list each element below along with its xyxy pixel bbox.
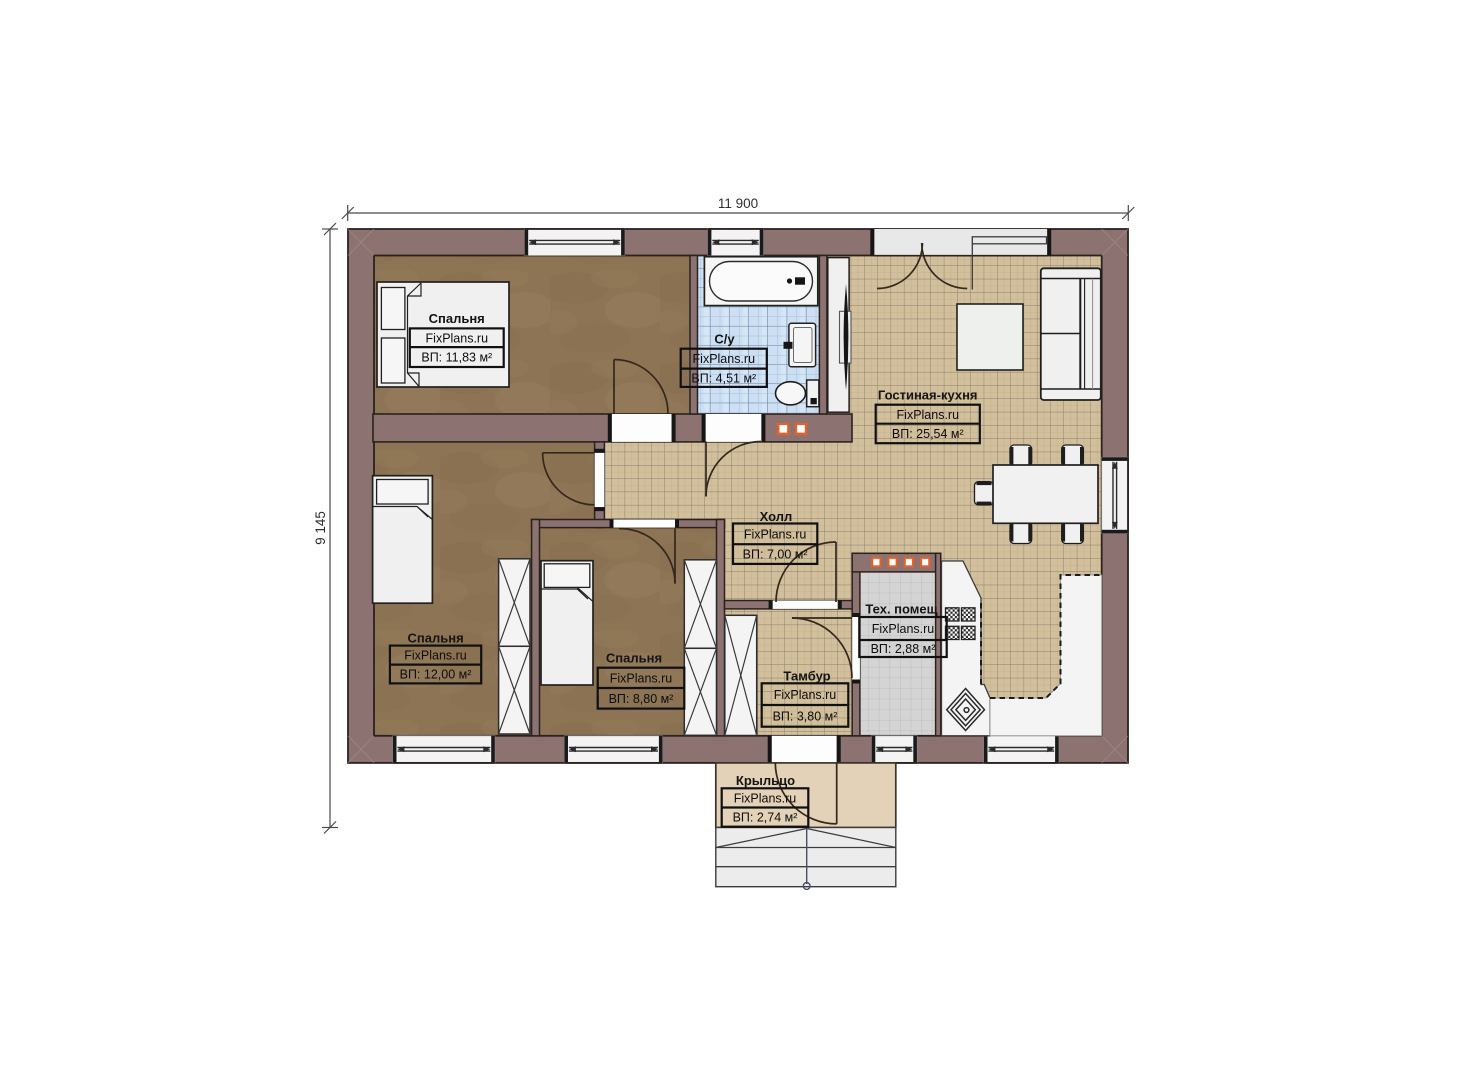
svg-text:FixPlans.ru: FixPlans.ru (404, 649, 467, 663)
svg-text:Холл: Холл (760, 509, 793, 524)
svg-text:Крыльцо: Крыльцо (736, 773, 795, 788)
svg-text:9 145: 9 145 (313, 511, 328, 545)
svg-text:С/у: С/у (714, 331, 735, 346)
svg-text:Гостиная-кухня: Гостиная-кухня (878, 387, 978, 402)
svg-text:FixPlans.ru: FixPlans.ru (426, 331, 489, 345)
svg-text:FixPlans.ru: FixPlans.ru (872, 622, 935, 636)
svg-text:ВП: 4,51 м²: ВП: 4,51 м² (691, 371, 756, 385)
svg-text:FixPlans.ru: FixPlans.ru (610, 672, 673, 686)
svg-text:Спальня: Спальня (606, 650, 662, 665)
svg-text:FixPlans.ru: FixPlans.ru (897, 408, 960, 422)
svg-text:ВП: 3,80 м²: ВП: 3,80 м² (773, 710, 838, 724)
svg-text:ВП: 12,00 м²: ВП: 12,00 м² (400, 668, 472, 682)
svg-text:Тамбур: Тамбур (783, 668, 830, 683)
svg-text:Спальня: Спальня (429, 311, 485, 326)
svg-text:ВП: 7,00 м²: ВП: 7,00 м² (743, 548, 808, 562)
svg-text:FixPlans.ru: FixPlans.ru (734, 792, 797, 806)
svg-text:Тех. помещ: Тех. помещ (865, 602, 937, 617)
svg-text:ВП: 8,80 м²: ВП: 8,80 м² (609, 692, 674, 706)
svg-text:FixPlans.ru: FixPlans.ru (744, 528, 807, 542)
svg-text:ВП: 2,88 м²: ВП: 2,88 м² (871, 642, 936, 656)
svg-text:ВП: 25,54 м²: ВП: 25,54 м² (892, 427, 964, 441)
svg-text:FixPlans.ru: FixPlans.ru (774, 688, 837, 702)
svg-text:ВП: 2,74 м²: ВП: 2,74 м² (733, 811, 798, 825)
svg-text:FixPlans.ru: FixPlans.ru (693, 352, 756, 366)
svg-text:ВП: 11,83 м²: ВП: 11,83 м² (421, 351, 492, 365)
svg-text:11 900: 11 900 (718, 196, 758, 211)
svg-text:Спальня: Спальня (408, 631, 464, 646)
